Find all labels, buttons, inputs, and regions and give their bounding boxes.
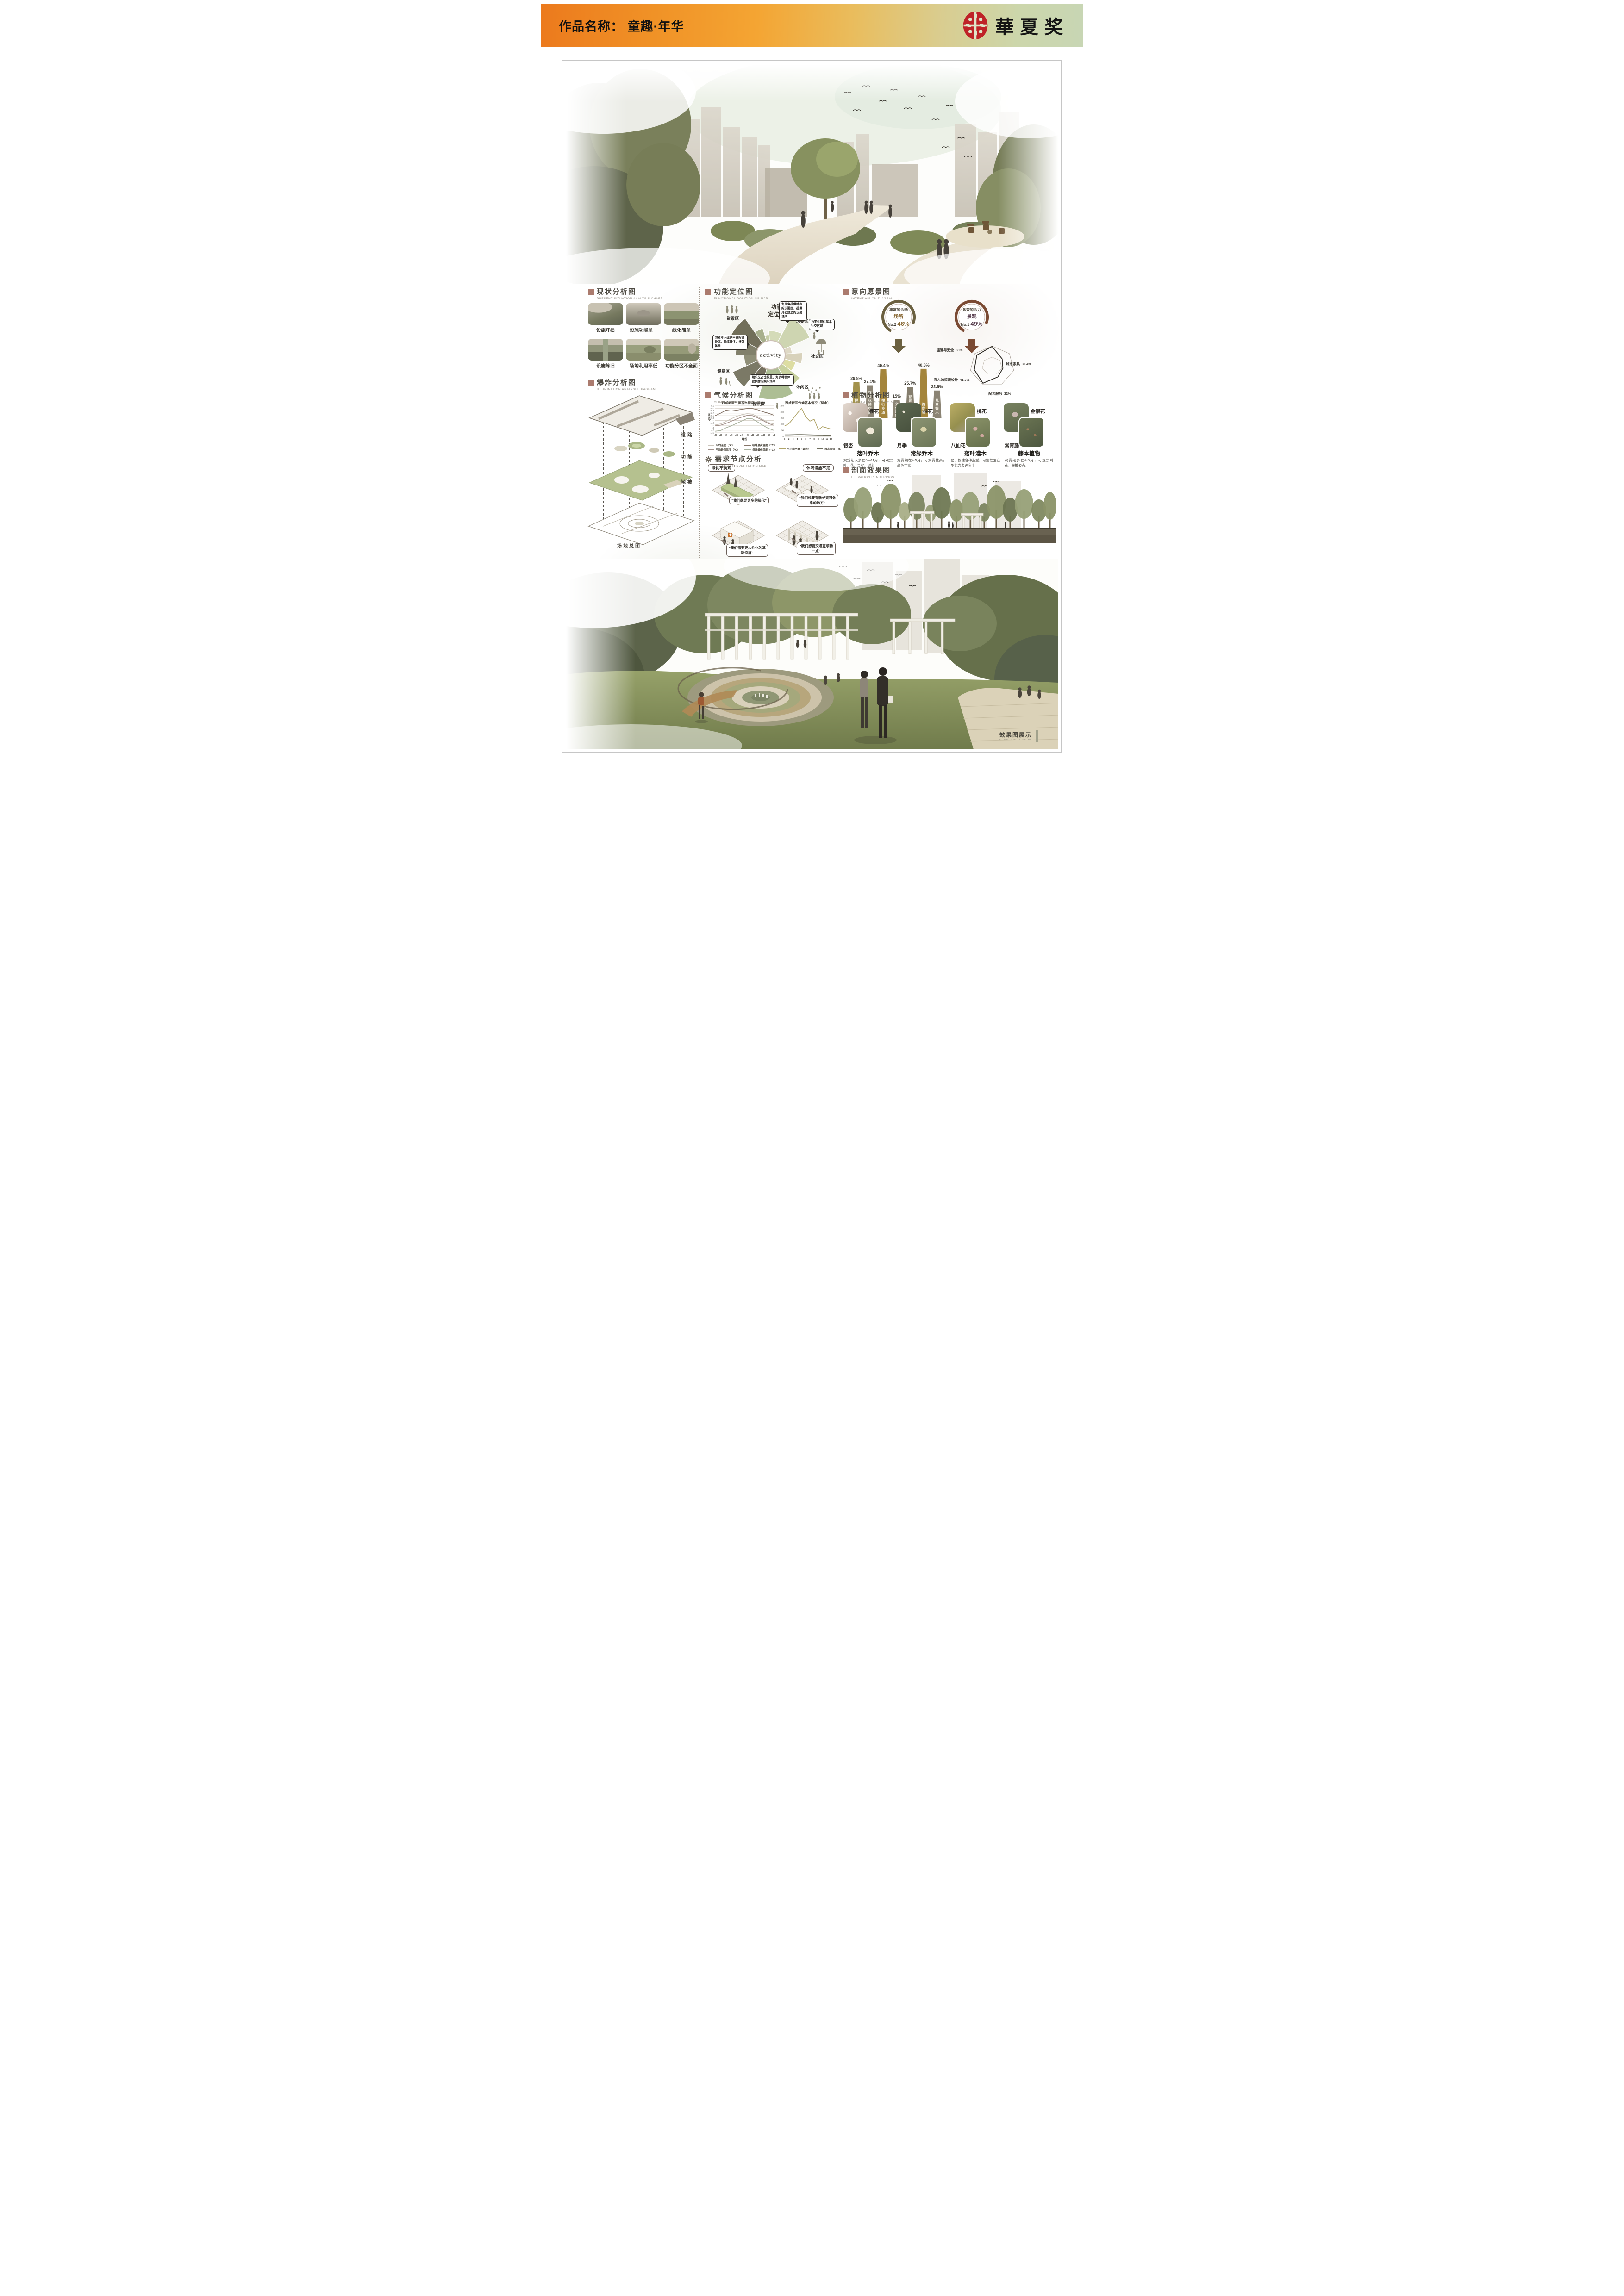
section-subtitle: PRESENT SITUATION ANALYSIS CHART xyxy=(597,297,663,300)
bar-value-label: 27.1% xyxy=(864,380,876,384)
svg-text:月份: 月份 xyxy=(741,437,748,441)
legend-text: 极端最高温度（℃） xyxy=(752,443,776,447)
section-square-icon xyxy=(843,392,849,398)
gear-icon xyxy=(705,456,712,463)
legend-item: 平均温度（℃） xyxy=(708,443,741,447)
circle-rank: No.1 xyxy=(961,322,969,327)
column-divider xyxy=(837,287,837,558)
down-arrow-icon xyxy=(895,339,902,346)
demand-grid: 绿化不美观“我们想要更多的绿化”休闲设施不足“我们想要有散步完可休息的地方”“我… xyxy=(705,464,833,557)
svg-text:11: 11 xyxy=(826,438,828,440)
svg-text:50: 50 xyxy=(781,429,784,431)
show-title: 效果图展示 xyxy=(999,731,1032,739)
situation-photo xyxy=(588,303,623,325)
base-plan-label: 场地总图 xyxy=(617,542,641,549)
svg-text:40.0: 40.0 xyxy=(710,407,714,410)
svg-text:0: 0 xyxy=(783,436,784,438)
section-title: 需求节点分析 xyxy=(715,454,762,464)
svg-text:150: 150 xyxy=(781,417,784,419)
legend-item: 平均最低温度（℃） xyxy=(708,448,741,452)
svg-text:25.0: 25.0 xyxy=(710,415,714,417)
precipitation-legend: 平均降水量（毫米）降水天数（日） xyxy=(779,447,835,451)
award-name: 華夏奖 xyxy=(995,12,1069,39)
renderings-show-label: 效果图展示 RENDERINGS SHOW xyxy=(999,730,1038,742)
situation-photo-card: 设施坏损 xyxy=(588,303,623,333)
plant-column: 桃花八仙花落叶灌木易于修建各种造型，可塑性强造型能力表达突出 xyxy=(950,401,1001,479)
zone-label: 赏景区 xyxy=(726,316,739,321)
svg-text:15.0: 15.0 xyxy=(710,419,714,422)
hero-rendering xyxy=(566,64,1058,284)
svg-text:2: 2 xyxy=(788,438,790,440)
poster-canvas: 现状分析图 PRESENT SITUATION ANALYSIS CHART 爆… xyxy=(562,60,1062,753)
section-subtitle: THEME INTERPRETATION MAP xyxy=(715,465,767,468)
svg-text:5.0: 5.0 xyxy=(712,424,715,427)
section-header-plants: 植物分析图 PLANT ANALYSIS DIAGRAM xyxy=(843,390,897,404)
intent-radar-chart: 连通与安全 38%城市家具 30.4%宜人的植栽设计 41.7%配套服务 32% xyxy=(933,337,1053,397)
circle-rank: No.2 xyxy=(888,322,896,327)
plant-name: 樱花 xyxy=(869,408,879,415)
show-subtitle: RENDERINGS SHOW xyxy=(999,739,1032,741)
speech-bubble: 为儿童提供特有的玩耍区，提供开心舒适的玩耍场所 xyxy=(779,301,807,321)
present-photo-grid: 设施坏损设施功能单一绿化简单设施陈旧场地利用率低功能分区不全面 xyxy=(588,303,699,369)
section-square-icon xyxy=(705,392,711,398)
section-title: 气候分析图 xyxy=(714,390,753,400)
situation-photo xyxy=(626,303,661,325)
plant-description: 易于修建各种造型，可塑性强造型能力表达突出 xyxy=(951,458,1000,468)
speech-bubble: 娱乐区占比较重，为多种群体提供休闲娱乐场所 xyxy=(750,374,794,386)
section-title: 爆炸分析图 xyxy=(597,377,636,387)
final-rendering xyxy=(566,559,1058,749)
section-square-icon xyxy=(705,289,711,295)
demand-cell: 休闲设施不足“我们想要有散步完可休息的地方” xyxy=(773,467,832,510)
legend-swatch xyxy=(708,445,714,446)
radar-polygon xyxy=(933,337,1053,397)
svg-text:7月: 7月 xyxy=(745,434,749,437)
plant-description: 观赏期多在4-8月，可观赏叶花，攀援姿态。 xyxy=(1005,458,1054,468)
circle-line1: 丰富的活动 xyxy=(889,307,908,312)
svg-text:6月: 6月 xyxy=(740,434,743,437)
plant-category: 落叶乔木 xyxy=(843,449,893,457)
section-title: 现状分析图 xyxy=(597,286,636,296)
section-square-icon xyxy=(843,289,849,295)
svg-text:-5.0: -5.0 xyxy=(711,429,714,431)
down-arrow-icon xyxy=(968,339,975,346)
photo-caption: 设施坏损 xyxy=(588,326,623,333)
section-title: 植物分析图 xyxy=(851,390,891,400)
situation-photo xyxy=(588,339,623,361)
demand-label: 休闲设施不足 xyxy=(803,464,834,472)
svg-text:activity: activity xyxy=(760,351,782,358)
demand-cell: “我们想要交通更顺畅一点” xyxy=(773,512,832,556)
svg-text:12月: 12月 xyxy=(771,434,775,437)
award-logo: 華夏奖 xyxy=(962,11,1069,40)
plant-column: 金银花常青藤藤本植物观赏期多在4-8月，可观赏叶花，攀援姿态。 xyxy=(1004,401,1055,479)
svg-text:1月: 1月 xyxy=(714,434,717,437)
svg-text:2月: 2月 xyxy=(719,434,722,437)
plant-name: 月季 xyxy=(897,442,907,449)
plant-photo xyxy=(911,417,937,448)
plant-category: 常绿乔木 xyxy=(896,449,947,457)
svg-text:8月: 8月 xyxy=(751,434,754,437)
photo-caption: 设施陈旧 xyxy=(588,362,623,369)
section-subtitle: FUNCTIONAL POSITIONING MAP xyxy=(714,297,768,300)
section-title: 剖面效果图 xyxy=(851,465,891,475)
zone-label: 社交区 xyxy=(810,354,823,359)
svg-text:-10.0: -10.0 xyxy=(710,432,715,434)
demand-quote: “我们想要更多的绿化” xyxy=(729,497,769,504)
legend-item: 极端最低温度（℃） xyxy=(744,448,777,452)
legend-swatch xyxy=(708,449,714,450)
temperature-legend: 平均温度（℃）极端最高温度（℃）平均最低温度（℃）极端最低温度（℃） xyxy=(708,443,777,452)
plant-name: 金银花 xyxy=(1031,408,1045,415)
radar-axis-label: 宜人的植栽设计 41.7% xyxy=(934,377,970,382)
svg-text:9月: 9月 xyxy=(756,434,759,437)
svg-text:10: 10 xyxy=(821,438,824,440)
radar-axis-label: 配套服务 32% xyxy=(988,391,1011,396)
situation-photo xyxy=(664,339,699,361)
demand-quote: “我们想要有散步完可休息的地方” xyxy=(797,494,838,507)
situation-photo-card: 设施陈旧 xyxy=(588,339,623,369)
section-header-climate: 气候分析图 CLIMATIC ANALYSIS CHART xyxy=(705,390,761,404)
legend-item: 降水天数（日） xyxy=(817,447,843,451)
legend-text: 降水天数（日） xyxy=(824,447,843,451)
speech-bubble: 为学生提供基本社交区域 xyxy=(809,319,835,330)
circle-line2: 场所 xyxy=(894,313,904,320)
photo-caption: 功能分区不全面 xyxy=(664,362,699,369)
svg-text:11月: 11月 xyxy=(766,434,770,437)
section-subtitle: ILLUMINATION ANALYSIS DIAGRAM xyxy=(597,388,656,391)
speech-bubble: 为老年人提供单独的健身区，锻炼身体，增强体质 xyxy=(712,335,748,350)
legend-text: 平均降水量（毫米） xyxy=(787,447,810,451)
circle-line2: 景观 xyxy=(967,313,977,320)
layer-label: 地被 xyxy=(681,478,694,485)
radar-axis-label: 城市家具 30.4% xyxy=(1006,361,1031,367)
legend-swatch xyxy=(779,448,786,449)
svg-text:西咸新区气候基本情况（降水）: 西咸新区气候基本情况（降水） xyxy=(785,401,831,405)
plant-column: 桂花月季常绿乔木观赏期在4-5月，可观赏性高，颜色丰富 xyxy=(896,401,947,479)
bar-value-label: 40.4% xyxy=(877,363,889,368)
section-subtitle: ELEVATION RENDERINGS xyxy=(851,476,894,479)
svg-text:1: 1 xyxy=(784,438,786,440)
svg-text:8: 8 xyxy=(813,438,815,440)
poster-page: 作品名称： 童趣·年华 華夏奖 xyxy=(541,0,1083,765)
svg-text:3: 3 xyxy=(793,438,794,440)
svg-text:0.0: 0.0 xyxy=(712,427,715,429)
plant-photo xyxy=(857,417,883,448)
section-subtitle: CLIMATIC ANALYSIS CHART xyxy=(714,401,761,404)
bar-value-label: 40.8% xyxy=(918,363,930,367)
svg-text:30.0: 30.0 xyxy=(710,412,714,414)
plant-name: 常青藤 xyxy=(1005,442,1019,449)
svg-text:4月: 4月 xyxy=(730,434,733,437)
situation-photo-card: 设施功能单一 xyxy=(626,303,661,333)
photo-caption: 场地利用率低 xyxy=(626,362,661,369)
section-square-icon xyxy=(843,467,849,473)
temperature-chart: 西咸新区气候基本情况（温度）45.040.035.030.025.020.015… xyxy=(706,400,776,443)
svg-text:10月: 10月 xyxy=(761,434,765,437)
photo-caption: 设施功能单一 xyxy=(626,326,661,333)
legend-swatch xyxy=(744,449,751,450)
svg-text:4: 4 xyxy=(797,438,798,440)
svg-text:9: 9 xyxy=(818,438,819,440)
plant-description: 观赏期在4-5月，可观赏性高，颜色丰富 xyxy=(897,458,946,468)
svg-text:5: 5 xyxy=(801,438,802,440)
section-square-icon xyxy=(588,380,594,386)
situation-photo-card: 绿化简单 xyxy=(664,303,699,333)
plant-category: 藤本植物 xyxy=(1004,449,1055,457)
svg-text:100: 100 xyxy=(781,423,784,425)
plant-name: 桃花 xyxy=(977,408,987,415)
section-title: 功能定位图 xyxy=(714,286,753,296)
plant-photo xyxy=(965,417,991,448)
award-rosette-icon xyxy=(962,11,989,40)
section-header-demand: 需求节点分析 THEME INTERPRETATION MAP xyxy=(705,454,767,468)
svg-text:7: 7 xyxy=(809,438,811,440)
section-header-functional: 功能定位图 FUNCTIONAL POSITIONING MAP xyxy=(705,286,768,300)
zone-label: 健身区 xyxy=(717,368,730,373)
legend-item: 极端最高温度（℃） xyxy=(744,443,777,447)
svg-text:5月: 5月 xyxy=(735,434,738,437)
section-square-icon xyxy=(588,289,594,295)
svg-text:45.0: 45.0 xyxy=(710,405,714,407)
situation-photo xyxy=(664,303,699,325)
work-title: 作品名称： 童趣·年华 xyxy=(559,17,684,35)
section-subtitle: PLANT ANALYSIS DIAGRAM xyxy=(851,401,897,404)
label-bar xyxy=(1036,730,1038,742)
legend-swatch xyxy=(817,448,823,449)
svg-text:6: 6 xyxy=(805,438,806,440)
demand-quote: “我们想要交通更顺畅一点” xyxy=(797,542,836,555)
plant-photo xyxy=(1018,417,1044,448)
svg-text:250: 250 xyxy=(781,405,784,407)
svg-text:35.0: 35.0 xyxy=(710,410,714,412)
section-title: 意向愿景图 xyxy=(851,286,891,296)
section-header-present: 现状分析图 PRESENT SITUATION ANALYSIS CHART xyxy=(588,286,663,300)
circle-pct: 49% xyxy=(970,320,982,327)
plant-name: 桂花 xyxy=(923,408,933,415)
circle-pct: 46% xyxy=(897,320,909,327)
bar-value-label: 29.8% xyxy=(850,376,862,381)
svg-text:10.0: 10.0 xyxy=(710,422,714,424)
legend-text: 平均温度（℃） xyxy=(716,443,734,447)
svg-text:3月: 3月 xyxy=(724,434,727,437)
demand-cell: “我们需要更人性化的基础设施” xyxy=(709,512,768,556)
svg-text:200: 200 xyxy=(781,411,784,413)
header-strip xyxy=(541,45,1083,47)
situation-photo-card: 功能分区不全面 xyxy=(664,339,699,369)
zone-label: 休闲区 xyxy=(795,384,808,389)
plant-name: 八仙花 xyxy=(951,442,966,449)
svg-text:12: 12 xyxy=(830,438,832,440)
elevation-rendering xyxy=(843,473,1056,552)
section-header-explosion: 爆炸分析图 ILLUMINATION ANALYSIS DIAGRAM xyxy=(588,377,656,391)
intent-circle-places: 丰富的活动 场所 No.2 46% xyxy=(880,299,917,353)
legend-swatch xyxy=(744,445,751,446)
legend-text: 极端最低温度（℃） xyxy=(752,448,776,452)
plant-category: 落叶灌木 xyxy=(950,449,1001,457)
legend-item: 平均降水量（毫米） xyxy=(779,447,810,451)
circle-line1: 多变的活力 xyxy=(962,307,981,312)
header-bar: 作品名称： 童趣·年华 華夏奖 xyxy=(541,4,1083,47)
intent-circle-landscape: 多变的活力 景观 No.1 49% xyxy=(953,299,990,353)
column-divider xyxy=(699,287,700,558)
demand-quote: “我们需要更人性化的基础设施” xyxy=(726,544,768,557)
layer-label: 功能 xyxy=(681,453,694,460)
situation-photo-card: 场地利用率低 xyxy=(626,339,661,369)
explosion-diagram xyxy=(585,389,696,551)
plant-name: 银杏 xyxy=(843,442,853,449)
section-header-elevation: 剖面效果图 ELEVATION RENDERINGS xyxy=(843,465,894,479)
situation-photo xyxy=(626,339,661,361)
legend-text: 平均最低温度（℃） xyxy=(716,448,740,452)
demand-cell: 绿化不美观“我们想要更多的绿化” xyxy=(709,467,768,510)
precipitation-chart: 西咸新区气候基本情况（降水）25020015010050012345678910… xyxy=(778,400,833,443)
layer-label: 道路 xyxy=(681,431,694,438)
photo-caption: 绿化简单 xyxy=(664,326,699,333)
bar-value-label: 25.7% xyxy=(904,381,916,386)
svg-text:20.0: 20.0 xyxy=(710,417,714,419)
